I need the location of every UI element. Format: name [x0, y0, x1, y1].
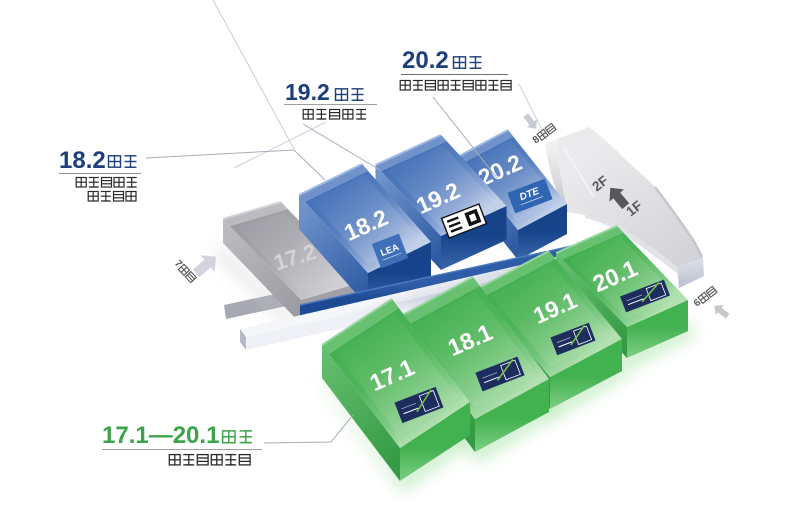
svg-text:8: 8: [531, 134, 542, 146]
svg-text:20.2: 20.2: [402, 47, 449, 74]
svg-text:17.1—20.1: 17.1—20.1: [102, 422, 219, 449]
svg-text:19.2: 19.2: [285, 79, 330, 105]
svg-text:18.2: 18.2: [59, 147, 106, 174]
